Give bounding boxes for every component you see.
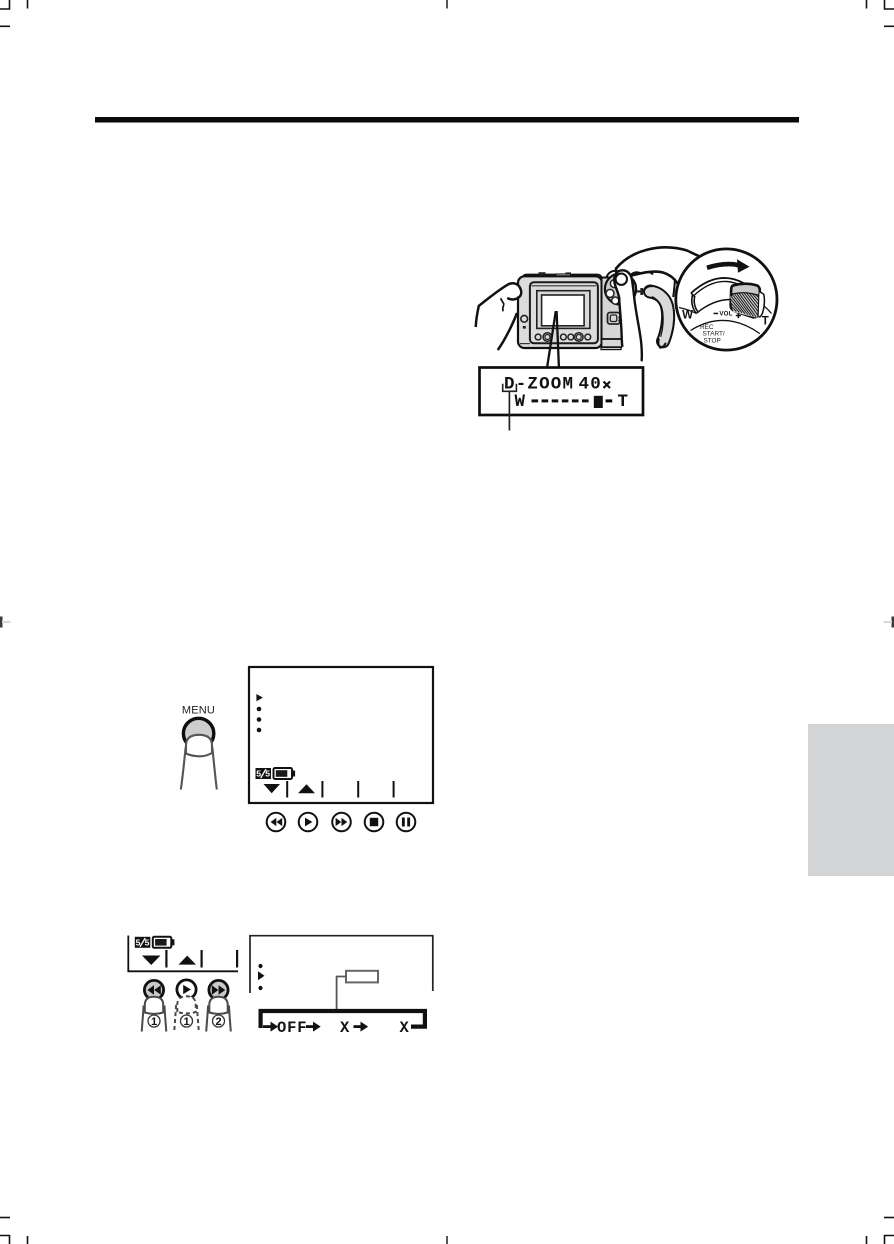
svg-text:MENU: MENU	[182, 705, 215, 717]
svg-text:OFF: OFF	[277, 1019, 307, 1037]
svg-text:X: X	[400, 1019, 410, 1037]
svg-text:W: W	[515, 392, 526, 412]
svg-text:40: 40	[579, 374, 602, 394]
svg-text:W: W	[682, 309, 693, 321]
svg-text:T: T	[762, 316, 769, 328]
svg-text:1: 1	[183, 1016, 189, 1028]
svg-text:STOP: STOP	[704, 337, 721, 344]
svg-text:T: T	[618, 392, 629, 412]
svg-text:2: 2	[215, 1016, 221, 1028]
svg-text:VOL: VOL	[719, 310, 732, 317]
svg-text:1: 1	[151, 1016, 157, 1028]
svg-text:X: X	[340, 1019, 350, 1037]
svg-text:5: 5	[265, 769, 270, 779]
svg-text:5: 5	[145, 937, 150, 947]
